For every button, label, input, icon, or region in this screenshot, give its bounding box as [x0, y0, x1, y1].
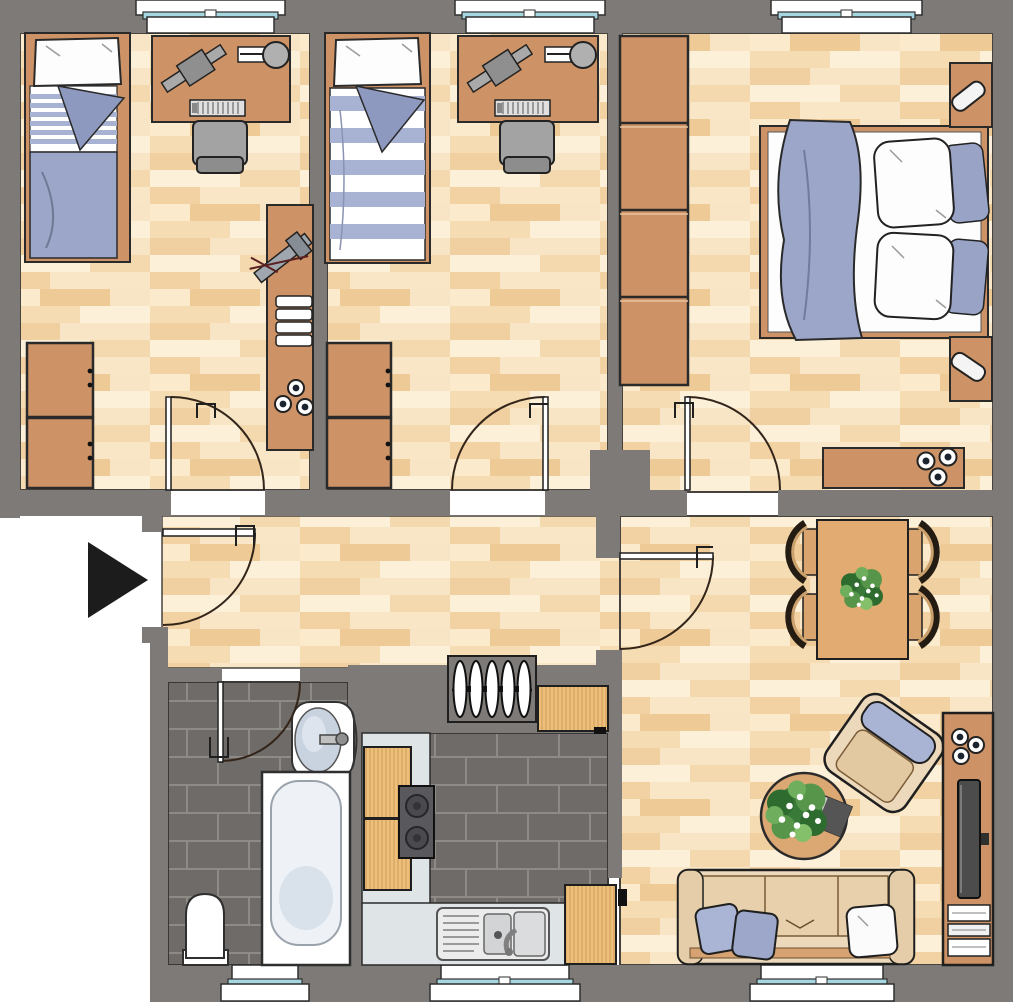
window-bedroom2 [455, 0, 605, 33]
wall-hall-top-b [265, 490, 450, 516]
wall-right [993, 0, 1013, 1002]
duvet [778, 120, 862, 340]
nightstand-top [949, 63, 992, 127]
cabinets [27, 343, 93, 488]
floorplan-svg [0, 0, 1024, 1002]
keyboard [190, 100, 245, 116]
wall-kitchen-living [608, 668, 622, 878]
wall-hall-top-a [0, 490, 171, 516]
wall-entrance-jamb-top [142, 516, 162, 532]
cabinets [327, 343, 391, 488]
toilet [183, 894, 228, 965]
nightstand-bottom [949, 337, 992, 401]
washbasin [292, 702, 357, 778]
wall-hall-top-c [545, 490, 687, 516]
sideboard [823, 448, 964, 488]
entrance-arrow-icon [88, 542, 148, 618]
duvet [30, 152, 117, 258]
wall-bathroom-top-b [300, 668, 348, 682]
wall-stub-master-door [590, 450, 650, 492]
desk [458, 36, 598, 122]
pillow [34, 38, 121, 86]
wall-bathroom-top-a [162, 668, 222, 682]
window-bedroom1 [136, 0, 285, 33]
floorplan-image [0, 0, 1024, 1002]
wall-hall-living-a [596, 516, 620, 558]
window-kitchen [430, 965, 580, 1001]
kitchen-door-stop [618, 889, 627, 906]
keyboard [495, 100, 550, 116]
desk-chair [500, 121, 554, 173]
blue-cushion [731, 910, 778, 961]
single-bed [325, 33, 430, 263]
window-master [771, 0, 922, 33]
bathtub [262, 772, 350, 965]
desk [152, 36, 290, 122]
radiator [448, 656, 536, 722]
kitchen-sink [437, 908, 549, 960]
hallway-floor [162, 516, 620, 668]
pillow [334, 38, 421, 86]
tv-sideboard [943, 713, 993, 965]
sofa [678, 870, 914, 964]
stove [399, 786, 434, 858]
single-bed [25, 33, 130, 262]
hifi-stack [948, 905, 990, 956]
double-bed [760, 120, 990, 340]
window-bathroom [221, 965, 309, 1001]
corner-cabinet-top [538, 686, 608, 731]
white-cushion [846, 904, 898, 958]
window-living [750, 965, 894, 1001]
desk-chair [193, 121, 247, 173]
wall-hall-top-d [778, 490, 993, 516]
wardrobe [620, 36, 688, 385]
wall-left [0, 0, 20, 518]
corner-cabinet-bottom [565, 885, 616, 964]
